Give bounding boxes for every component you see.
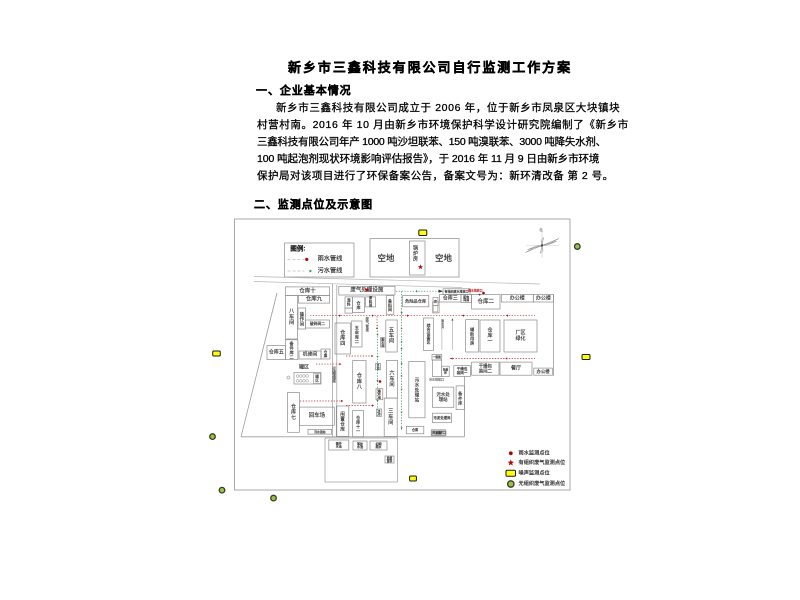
svg-text:一级箱: 一级箱 xyxy=(433,355,441,359)
svg-text:污水管线: 污水管线 xyxy=(318,266,343,274)
svg-text:混料: 混料 xyxy=(347,298,351,307)
svg-text:危险品仓库: 危险品仓库 xyxy=(405,298,426,305)
svg-text:五车间: 五车间 xyxy=(389,326,394,344)
svg-text:雨水管线: 雨水管线 xyxy=(318,255,343,263)
svg-text:暂存: 暂存 xyxy=(387,459,393,463)
svg-text:北: 北 xyxy=(539,227,543,232)
svg-text:仓库七: 仓库七 xyxy=(291,403,296,421)
svg-text:仓库四: 仓库四 xyxy=(340,328,346,347)
svg-text:仓库二: 仓库二 xyxy=(478,297,495,305)
svg-text:三车间: 三车间 xyxy=(388,408,393,426)
svg-text:无组织废气监测点位: 无组织废气监测点位 xyxy=(519,479,566,487)
svg-text:雨水监测点位: 雨水监测点位 xyxy=(519,448,550,456)
svg-text:操作间: 操作间 xyxy=(300,310,305,327)
svg-text:仓库一: 仓库一 xyxy=(487,327,492,345)
svg-text:五金库二: 五金库二 xyxy=(355,325,360,344)
svg-text:集水池: 集水池 xyxy=(381,337,384,347)
svg-text:间: 间 xyxy=(444,370,447,374)
svg-text:仓库: 仓库 xyxy=(412,427,419,432)
svg-text:办公楼: 办公楼 xyxy=(510,294,525,301)
svg-text:水池: 水池 xyxy=(357,444,363,449)
svg-text:仓库八: 仓库八 xyxy=(357,371,363,390)
svg-text:水池: 水池 xyxy=(377,363,380,370)
svg-text:有组织废水排放口: 有组织废水排放口 xyxy=(444,289,468,294)
svg-text:仓库三: 仓库三 xyxy=(443,294,458,301)
svg-text:装间二: 装间二 xyxy=(479,368,493,375)
svg-text:闲置仓库: 闲置仓库 xyxy=(340,410,345,432)
svg-text:污水排放口: 污水排放口 xyxy=(429,376,444,381)
svg-text:办公楼: 办公楼 xyxy=(536,294,551,301)
svg-text:罐区: 罐区 xyxy=(315,374,319,383)
svg-text:办公楼: 办公楼 xyxy=(536,368,550,375)
svg-text:空地: 空地 xyxy=(435,253,453,263)
svg-text:备件库二: 备件库二 xyxy=(290,339,295,359)
svg-text:餐厅: 餐厅 xyxy=(511,365,521,372)
svg-text:水池: 水池 xyxy=(336,444,342,449)
svg-text:图例:: 图例: xyxy=(290,244,305,253)
svg-text:仓库十一: 仓库十一 xyxy=(356,413,361,433)
svg-text:破碎间二: 破碎间二 xyxy=(310,321,325,326)
svg-text:仓库十: 仓库十 xyxy=(299,286,316,294)
svg-text:综合设备区: 综合设备区 xyxy=(427,323,431,344)
svg-text:理站: 理站 xyxy=(439,396,448,403)
svg-text:辅助用房: 辅助用房 xyxy=(470,326,474,347)
svg-text:绿化: 绿化 xyxy=(515,335,525,342)
svg-text:雨水井: 雨水井 xyxy=(441,319,444,329)
svg-text:污泥处理间: 污泥处理间 xyxy=(433,415,451,420)
svg-text:运输通道: 运输通道 xyxy=(332,366,336,383)
svg-text:仓库: 仓库 xyxy=(324,349,328,358)
svg-text:回车场: 回车场 xyxy=(309,411,326,419)
svg-text:污水处理站: 污水处理站 xyxy=(415,376,420,403)
svg-text:锅炉房: 锅炉房 xyxy=(413,245,418,263)
svg-text:备件库: 备件库 xyxy=(458,390,463,406)
svg-text:间房: 间房 xyxy=(463,297,469,302)
svg-text:六车间: 六车间 xyxy=(389,369,394,388)
svg-text:有组织废气监测点位: 有组织废气监测点位 xyxy=(519,458,566,466)
svg-text:废气管道: 废气管道 xyxy=(366,316,370,332)
svg-text:备料间: 备料间 xyxy=(388,297,392,312)
svg-text:罐区: 罐区 xyxy=(299,364,309,371)
svg-text:雨水排放口: 雨水排放口 xyxy=(468,287,483,292)
svg-text:仓库: 仓库 xyxy=(356,299,360,309)
svg-text:仓库五: 仓库五 xyxy=(269,349,284,356)
svg-text:雨水排放口: 雨水排放口 xyxy=(433,431,446,435)
svg-text:仓库九: 仓库九 xyxy=(306,294,323,302)
svg-text:房: 房 xyxy=(434,299,437,304)
svg-text:空地: 空地 xyxy=(377,253,395,263)
svg-text:水池: 水池 xyxy=(378,409,381,416)
svg-text:污水流向: 污水流向 xyxy=(314,430,325,434)
svg-text:雨水: 雨水 xyxy=(375,444,381,449)
svg-text:机修间: 机修间 xyxy=(303,351,318,358)
svg-text:八车间: 八车间 xyxy=(289,309,295,326)
svg-text:噪声监测点位: 噪声监测点位 xyxy=(519,468,550,476)
svg-text:装间一: 装间一 xyxy=(457,370,468,375)
